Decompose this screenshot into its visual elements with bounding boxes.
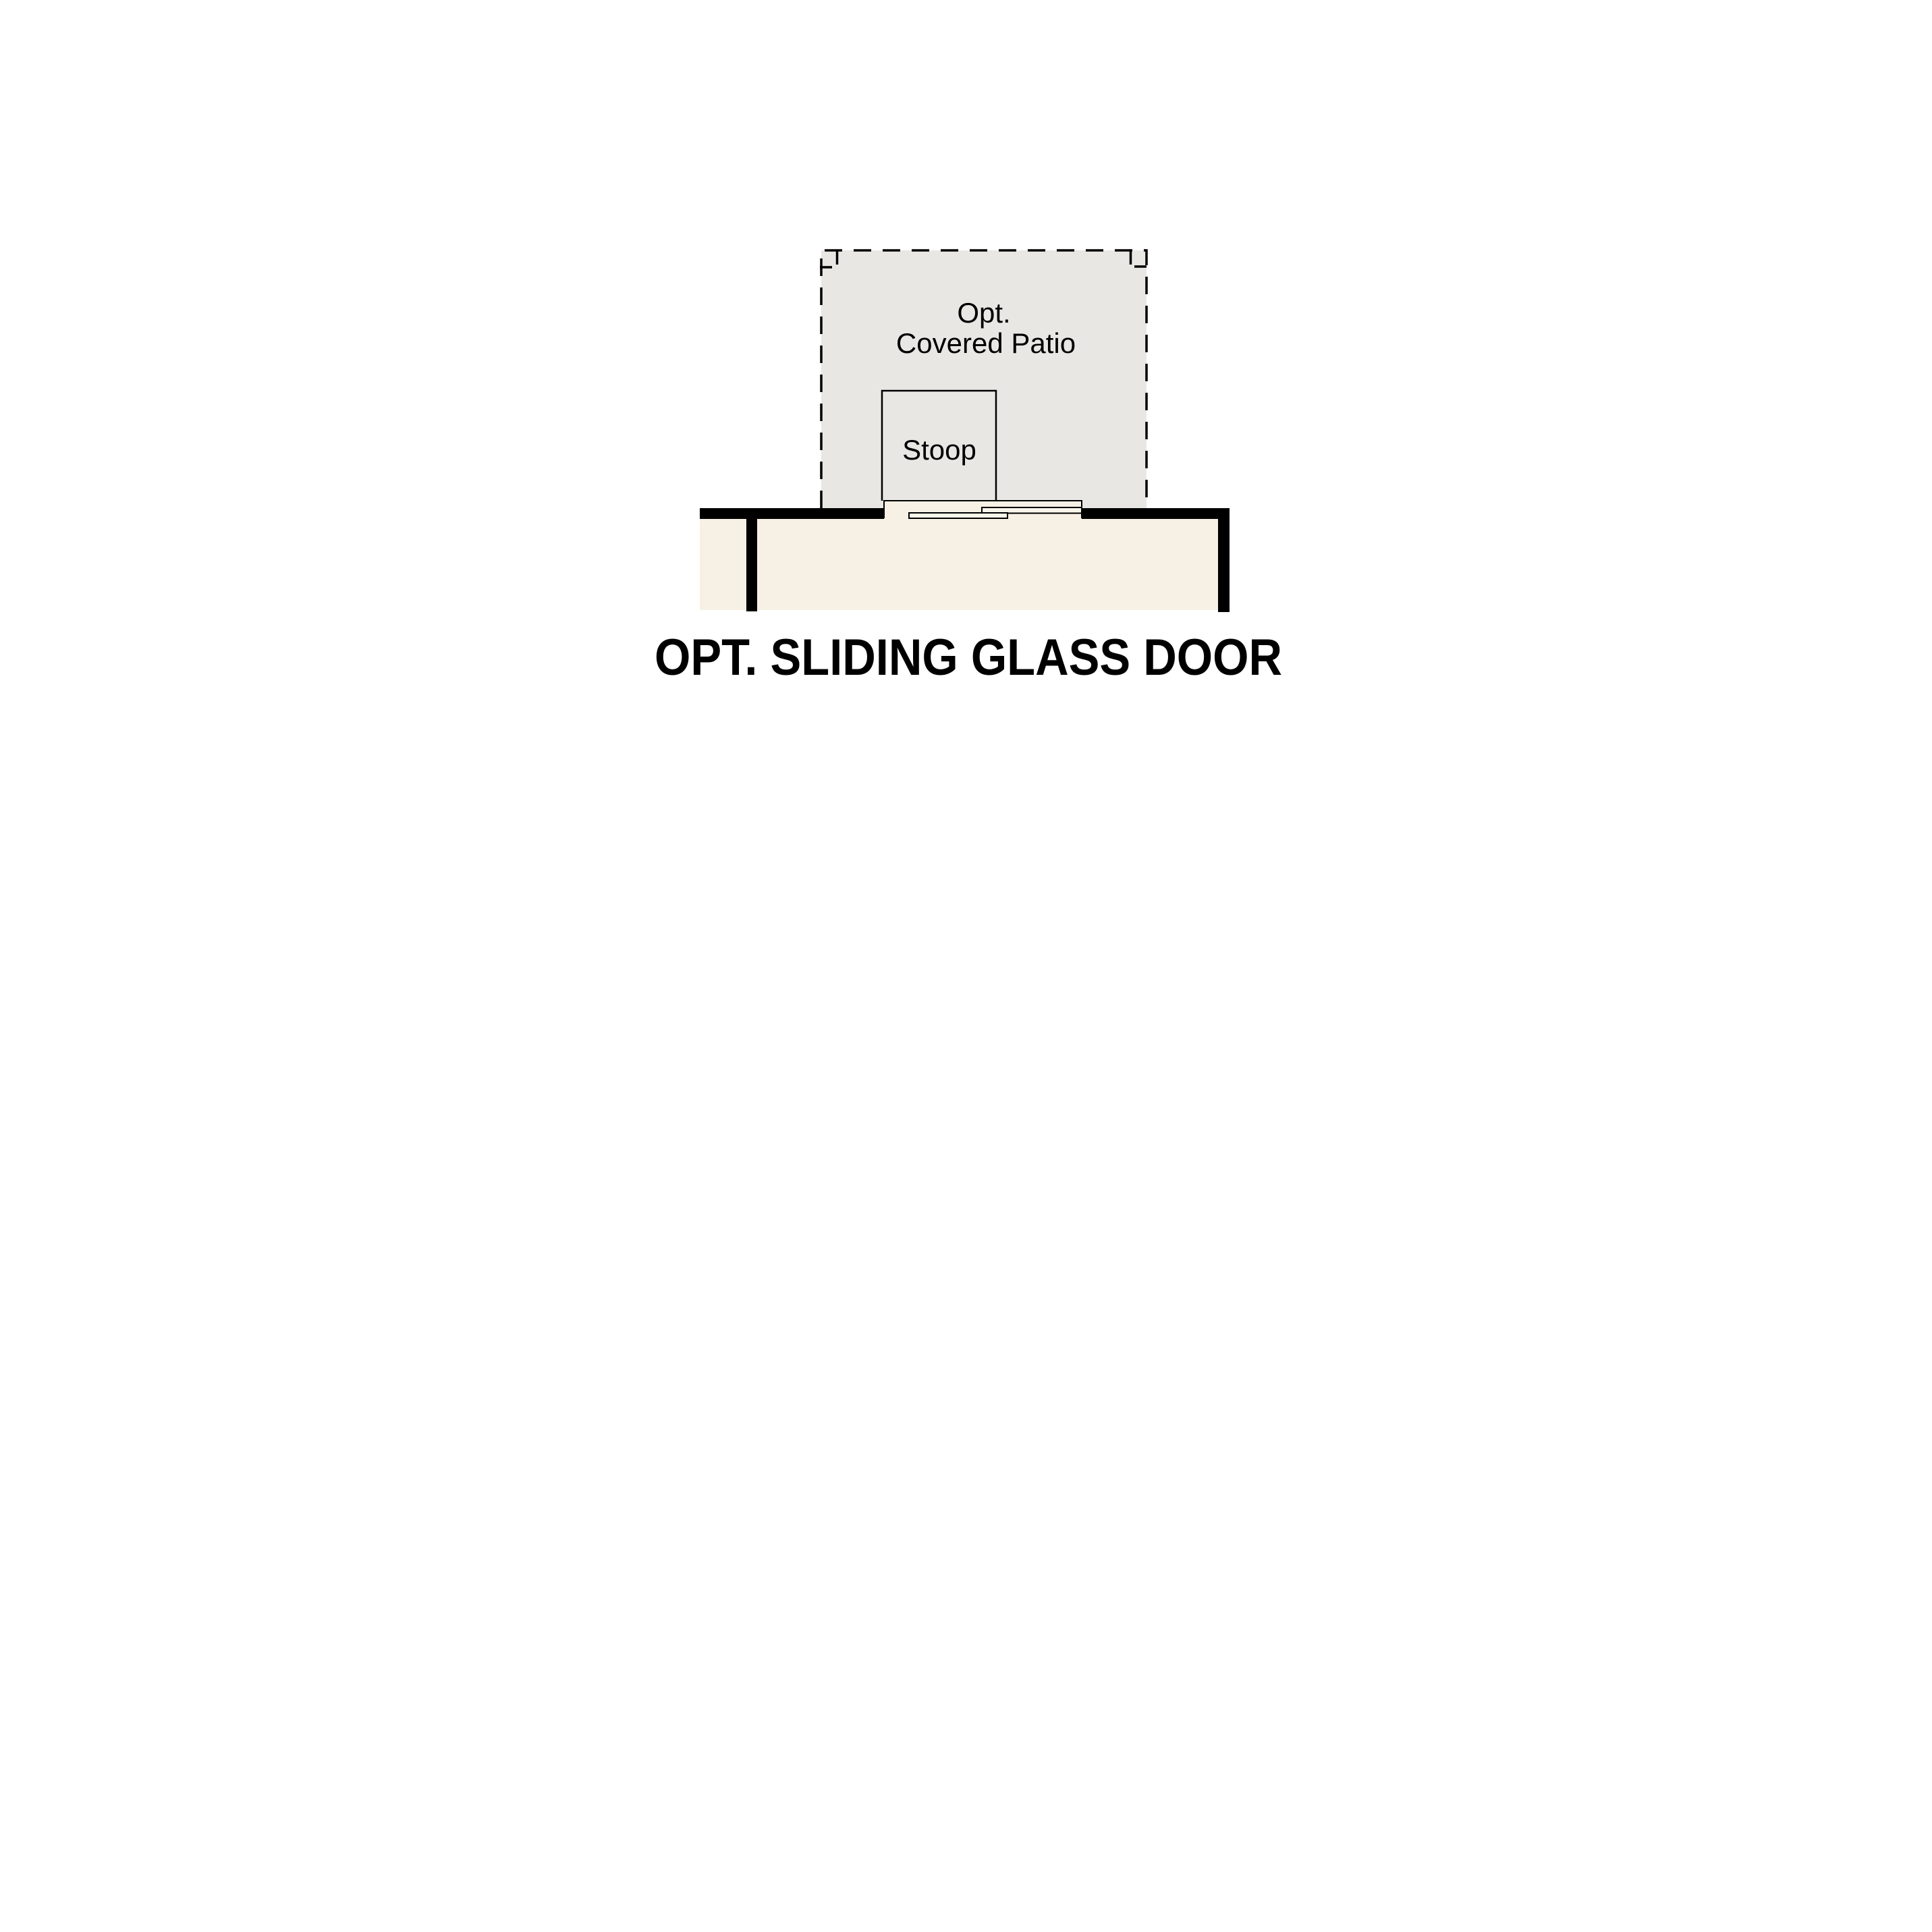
plan-title: OPT. SLIDING GLASS DOOR bbox=[655, 629, 1282, 686]
interior-floor bbox=[700, 508, 1228, 610]
page-canvas: Opt. Covered Patio Stoop OPT. SLIDING GL… bbox=[0, 0, 1932, 1932]
stoop-label: Stoop bbox=[902, 434, 976, 466]
patio-label-line2: Covered Patio bbox=[896, 327, 1076, 359]
wall-left-segment bbox=[700, 508, 884, 519]
wall-right-vertical bbox=[1218, 508, 1230, 612]
floor-plan-svg: Opt. Covered Patio Stoop OPT. SLIDING GL… bbox=[0, 0, 1932, 1932]
patio-label-line1: Opt. bbox=[957, 297, 1010, 329]
wall-interior-partition bbox=[746, 508, 757, 611]
sliding-door-panel-inner bbox=[909, 513, 1008, 518]
wall-right-segment bbox=[1082, 508, 1230, 519]
